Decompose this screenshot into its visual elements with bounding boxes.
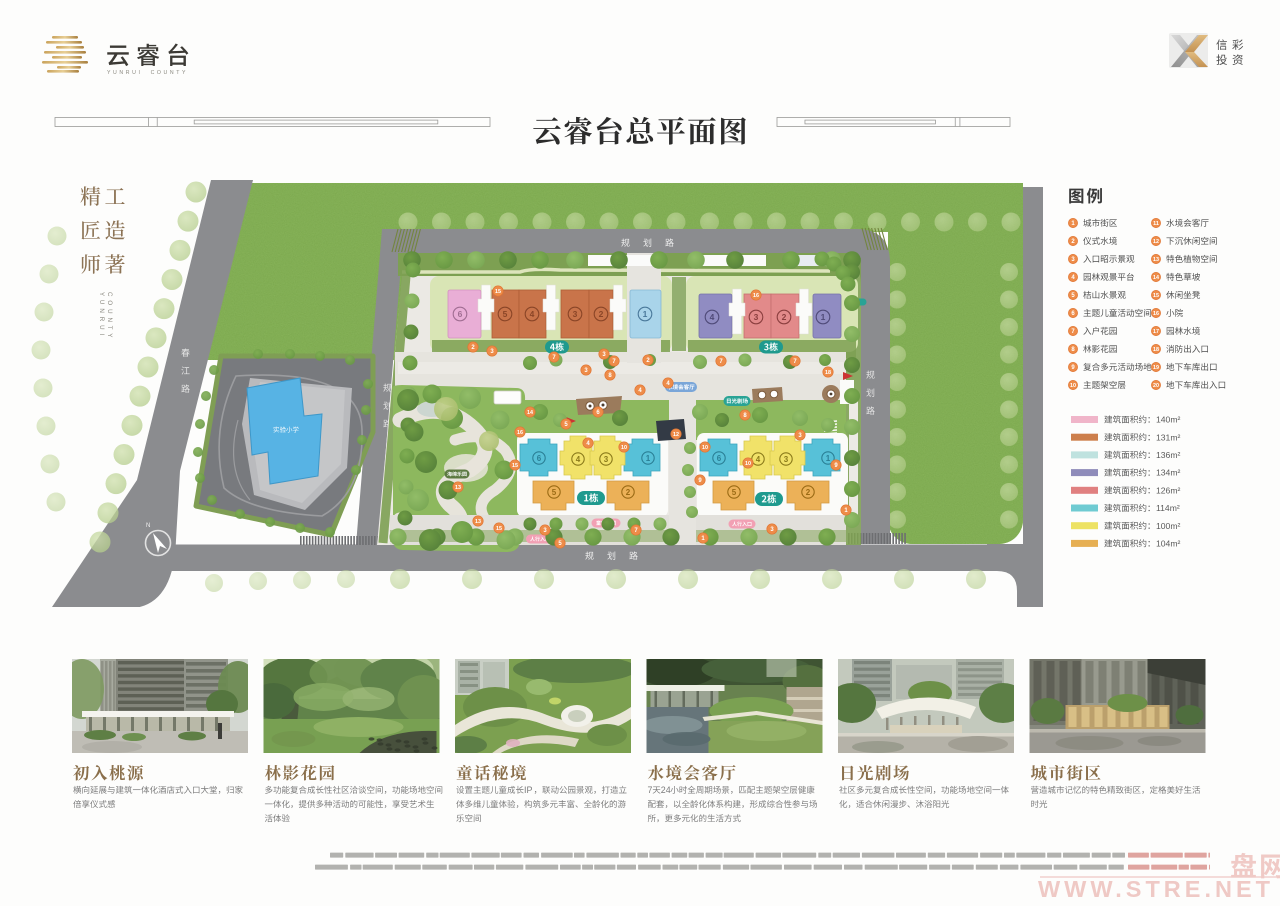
svg-text:2: 2 [806,488,811,497]
svg-text:134m²: 134m² [1156,468,1180,478]
svg-text:131m²: 131m² [1156,432,1180,442]
svg-text:15: 15 [495,289,501,295]
svg-text:16: 16 [517,430,523,436]
svg-text:1: 1 [821,312,826,322]
svg-text:13: 13 [1153,257,1159,263]
svg-text:5: 5 [552,488,557,497]
svg-text:126m²: 126m² [1156,485,1180,495]
svg-text:3: 3 [573,309,578,319]
svg-text:11: 11 [1153,221,1159,227]
svg-text:N: N [146,523,150,529]
svg-text:15: 15 [1153,293,1159,299]
svg-text:Y U N R U I: Y U N R U I [98,292,105,336]
svg-text:13: 13 [455,485,461,491]
svg-text:13: 13 [475,519,481,525]
svg-text:20: 20 [1153,383,1159,389]
svg-text:4: 4 [710,312,715,322]
svg-text:104m²: 104m² [1156,539,1180,549]
svg-text:18: 18 [825,370,831,376]
svg-text:10: 10 [745,461,751,467]
svg-text:YUNRUI COUNTY: YUNRUI COUNTY [107,70,188,76]
svg-text:6: 6 [717,454,722,463]
svg-text:19: 19 [1153,365,1159,371]
svg-text:10: 10 [621,445,627,451]
svg-text:10: 10 [702,445,708,451]
svg-text:3: 3 [754,312,759,322]
svg-text:2: 2 [599,309,604,319]
svg-text:12: 12 [1153,239,1159,245]
svg-text:100m²: 100m² [1156,521,1180,531]
svg-text:15: 15 [496,526,502,532]
svg-text:16: 16 [1153,311,1159,317]
svg-text:1: 1 [643,309,648,319]
svg-text:15: 15 [512,463,518,469]
svg-text:IP: IP [524,785,532,795]
svg-text:24: 24 [661,785,671,795]
svg-text:140m²: 140m² [1156,415,1180,425]
svg-text:6: 6 [537,454,542,463]
svg-text:12: 12 [673,432,679,438]
svg-text:4: 4 [530,309,535,319]
svg-text:2: 2 [782,312,787,322]
svg-text:136m²: 136m² [1156,450,1180,460]
svg-text:14: 14 [527,410,533,416]
svg-text:7: 7 [648,785,653,795]
svg-text:3: 3 [604,455,609,464]
svg-text:4: 4 [576,455,581,464]
svg-text:17: 17 [1153,329,1159,335]
svg-text:14: 14 [1153,275,1159,281]
svg-text:5: 5 [503,309,508,319]
svg-text:C O U N T Y: C O U N T Y [106,292,113,338]
svg-text:2: 2 [626,488,631,497]
svg-text:3: 3 [784,455,789,464]
svg-text:5: 5 [732,488,737,497]
svg-text:WWW.STRE.NET: WWW.STRE.NET [1038,876,1274,902]
svg-text:114m²: 114m² [1156,503,1180,513]
svg-text:10: 10 [1070,383,1076,389]
svg-text:1: 1 [826,454,831,463]
svg-text:6: 6 [458,309,463,319]
svg-text:18: 18 [1153,347,1159,353]
svg-text:1: 1 [646,454,651,463]
svg-text:16: 16 [753,293,759,299]
svg-text:4: 4 [756,455,761,464]
